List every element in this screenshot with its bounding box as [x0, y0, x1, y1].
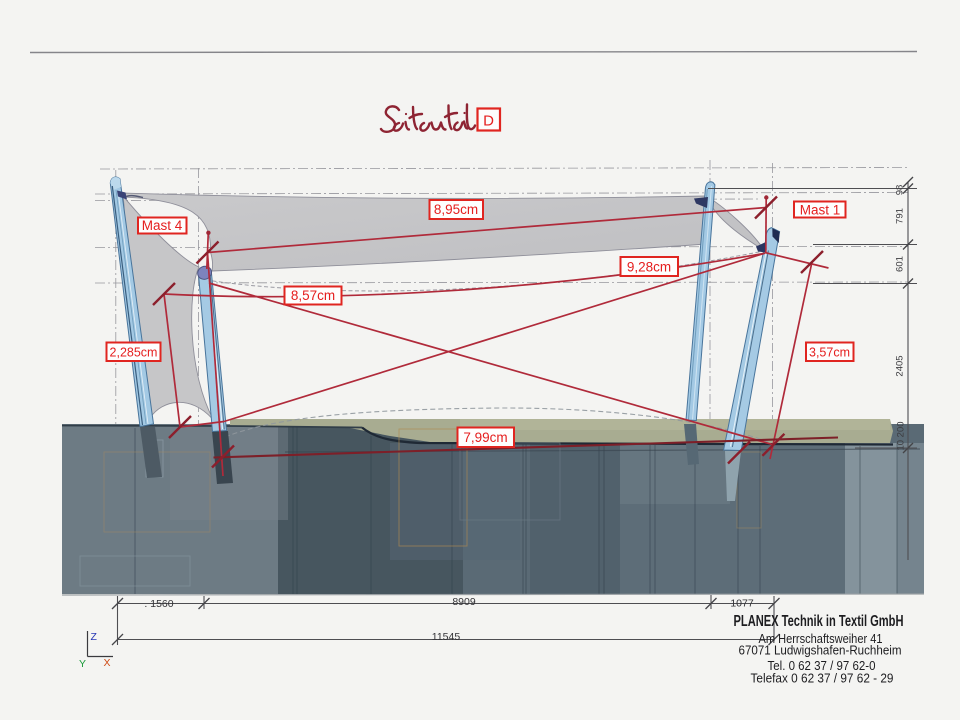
svg-text:98: 98: [895, 185, 906, 196]
svg-text:Mast 4: Mast 4: [142, 218, 183, 233]
svg-text:7,99cm: 7,99cm: [463, 430, 507, 445]
svg-text:Z: Z: [91, 631, 98, 643]
svg-text:Mast 1: Mast 1: [800, 203, 841, 218]
svg-text:67071 Ludwigshafen-Ruchheim: 67071 Ludwigshafen-Ruchheim: [739, 643, 902, 658]
svg-text:8,57cm: 8,57cm: [291, 288, 335, 303]
svg-text:1077: 1077: [730, 598, 754, 610]
svg-text:11545: 11545: [432, 631, 461, 643]
svg-text:2405: 2405: [895, 355, 906, 376]
svg-text:8,95cm: 8,95cm: [434, 202, 478, 217]
svg-text:601: 601: [895, 256, 906, 272]
svg-text:8909: 8909: [452, 596, 476, 608]
svg-text:Y: Y: [79, 658, 86, 670]
svg-text:10 200: 10 200: [896, 421, 907, 450]
svg-text:PLANEX Technik in Textil GmbH: PLANEX Technik in Textil GmbH: [734, 613, 904, 630]
svg-text:2,285cm: 2,285cm: [110, 346, 158, 360]
svg-text:D: D: [483, 113, 494, 130]
svg-text:X: X: [104, 657, 111, 669]
svg-text:791: 791: [895, 208, 906, 224]
svg-text:3,57cm: 3,57cm: [809, 346, 850, 360]
svg-text:Telefax 0 62 37 / 97 62 - 29: Telefax 0 62 37 / 97 62 - 29: [751, 671, 894, 686]
svg-text:9,28cm: 9,28cm: [627, 260, 671, 275]
svg-text:. 1560: . 1560: [144, 598, 173, 610]
